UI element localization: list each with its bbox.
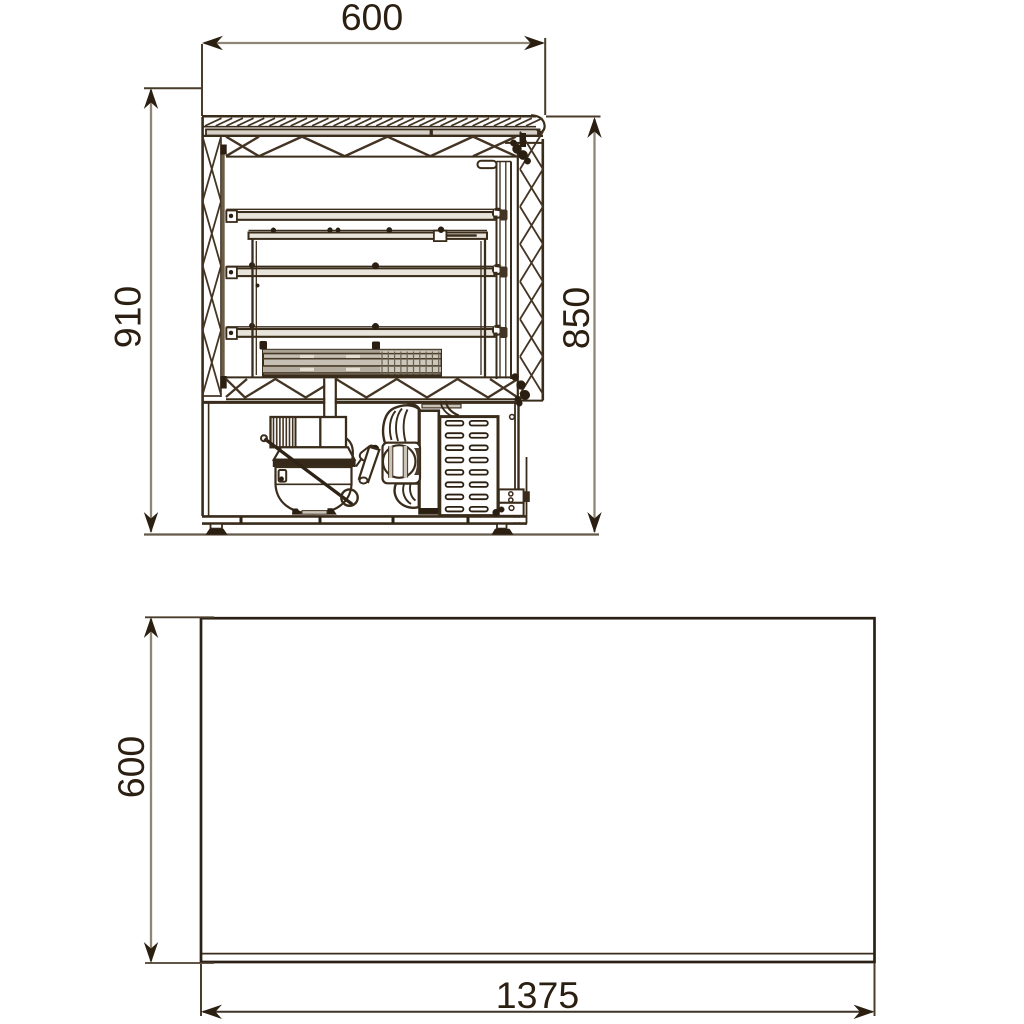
svg-text:1375: 1375	[496, 974, 579, 1016]
svg-text:600: 600	[110, 736, 152, 799]
svg-text:910: 910	[107, 286, 149, 349]
svg-text:850: 850	[555, 287, 597, 350]
svg-text:600: 600	[341, 0, 404, 38]
